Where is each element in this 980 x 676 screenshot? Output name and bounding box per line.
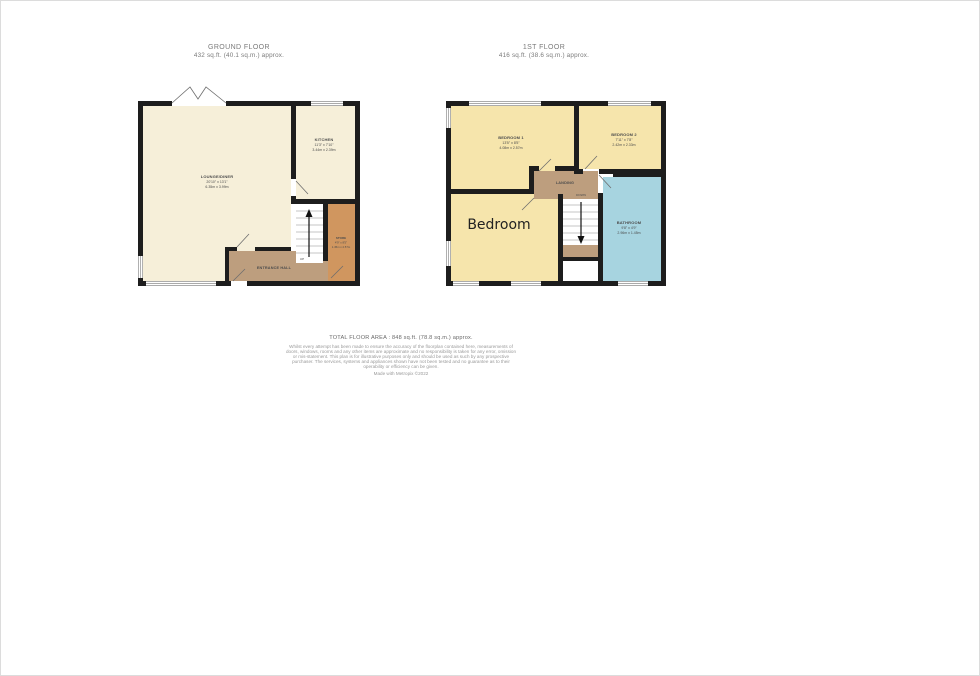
bedroom2-label: BEDROOM 2	[611, 132, 637, 137]
up-label: UP	[300, 257, 304, 261]
first-floor-header: 1ST FLOOR 416 sq.ft. (38.6 sq.m.) approx…	[439, 44, 649, 59]
ground-floor-header: GROUND FLOOR 432 sq.ft. (40.1 sq.m.) app…	[134, 44, 344, 59]
bedroom1-label: BEDROOM 1	[498, 135, 524, 140]
store-label: STORE	[336, 236, 346, 240]
kitchen-room	[296, 106, 355, 199]
lounge-metric: 6.35m x 3.99m	[205, 185, 228, 189]
metropix-credit: Made with Metropix ©2022	[201, 371, 601, 376]
bedroom2-imperial: 7'11" x 7'8"	[616, 138, 634, 142]
bedroom1-window	[469, 101, 541, 106]
kitchen-metric: 3.44m x 2.39m	[312, 148, 335, 152]
bathroom-metric: 2.96m x 1.45m	[617, 231, 640, 235]
landing-label: LANDING	[556, 181, 574, 185]
left-bottom-window	[446, 241, 451, 266]
bathroom-room	[603, 177, 661, 283]
store-imperial: 4'9" x 8'5"	[335, 241, 347, 245]
bedroom1-metric: 4.08m x 2.57m	[499, 146, 522, 150]
bedroom2-window	[608, 101, 651, 106]
lounge-imperial: 20'10" x 13'1"	[206, 180, 228, 184]
down-label: DOWN	[576, 193, 586, 197]
under-stairs-area	[563, 261, 598, 283]
bedroom3-window-2	[511, 281, 541, 286]
first-floor-title: 1ST FLOOR	[439, 44, 649, 51]
bedroom2-metric: 2.42m x 2.33m	[612, 143, 635, 147]
bathroom-window	[618, 281, 648, 286]
ground-floor-title: GROUND FLOOR	[134, 44, 344, 51]
bathroom-label: BATHROOM	[617, 220, 642, 225]
total-floor-area: TOTAL FLOOR AREA : 848 sq.ft. (78.8 sq.m…	[201, 335, 601, 341]
kitchen-window	[311, 101, 343, 106]
bedroom3-window-1	[453, 281, 479, 286]
kitchen-label: KITCHEN	[315, 137, 334, 142]
ground-floor-area-subtitle: 432 sq.ft. (40.1 sq.m.) approx.	[134, 52, 344, 59]
landing-area	[534, 171, 598, 199]
entrance-hall-label: ENTRANCE HALL	[257, 266, 292, 270]
lounge-label: LOUNGE/DINER	[201, 174, 233, 179]
bedroom1-imperial: 13'5" x 8'5"	[502, 141, 520, 145]
footer: TOTAL FLOOR AREA : 848 sq.ft. (78.8 sq.m…	[201, 335, 601, 376]
stair-half-landing	[563, 245, 598, 257]
kitchen-imperial: 11'3" x 7'10"	[315, 143, 335, 147]
left-top-window	[446, 108, 451, 128]
bathroom-imperial: 9'8" x 4'9"	[621, 226, 637, 230]
store-metric: 1.45m x 2.57m	[332, 245, 351, 249]
bedroom-annotation: Bedroom	[467, 217, 530, 233]
lounge-side-window	[138, 256, 143, 278]
disclaimer-text: Whilst every attempt has been made to en…	[285, 344, 517, 369]
floorplan-page: GROUND FLOOR 432 sq.ft. (40.1 sq.m.) app…	[0, 0, 980, 676]
ground-floor-plan: LOUNGE/DINER 20'10" x 13'1" 6.35m x 3.99…	[131, 81, 371, 296]
french-doors	[172, 87, 226, 103]
first-floor-plan: BEDROOM 1 13'5" x 8'5" 4.08m x 2.57m BED…	[441, 81, 676, 296]
bedroom3-room	[451, 194, 558, 283]
first-floor-area-subtitle: 416 sq.ft. (38.6 sq.m.) approx.	[439, 52, 649, 59]
lounge-bottom-window	[146, 281, 216, 286]
